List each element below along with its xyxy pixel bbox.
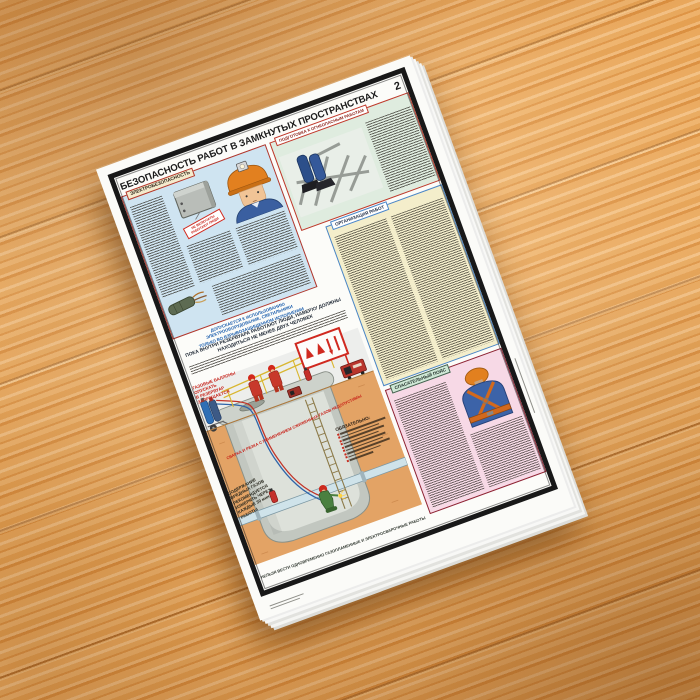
poster-content: БЕЗОПАСНОСТЬ РАБОТ В ЗАМКНУТЫХ ПРОСТРАНС… — [114, 73, 552, 590]
photo-canvas: { "scene": { "background": "wooden table… — [0, 0, 700, 700]
safety-poster: БЕЗОПАСНОСТЬ РАБОТ В ЗАМКНУТЫХ ПРОСТРАНС… — [96, 55, 574, 620]
imprint-line — [269, 593, 303, 606]
placeholder-text-block — [187, 230, 244, 283]
poster-pad: БЕЗОПАСНОСТЬ РАБОТ В ЗАМКНУТЫХ ПРОСТРАНС… — [96, 55, 574, 620]
placeholder-text-column — [470, 416, 541, 487]
poster-frame: БЕЗОПАСНОСТЬ РАБОТ В ЗАМКНУТЫХ ПРОСТРАНС… — [108, 67, 559, 597]
